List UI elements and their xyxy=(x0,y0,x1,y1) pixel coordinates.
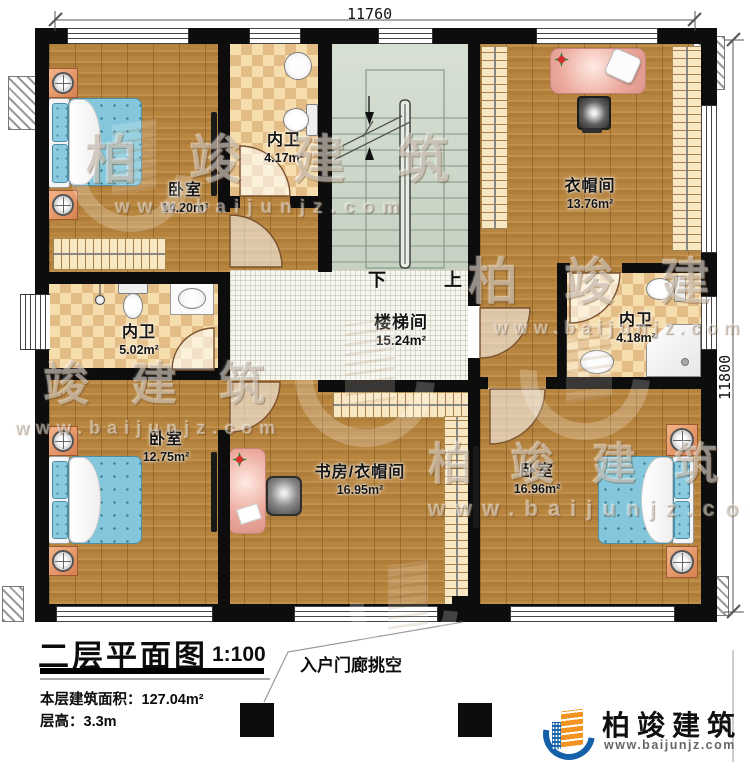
dimension-top-label: 11760 xyxy=(347,5,392,23)
monitor-stand xyxy=(582,128,602,133)
wall xyxy=(468,358,480,392)
window xyxy=(510,606,675,622)
floor-area-value: 127.04m² xyxy=(142,692,204,708)
stair-up-label: 上 xyxy=(444,266,462,292)
bed-pillow xyxy=(52,144,68,183)
stair-down-label: 下 xyxy=(368,266,386,292)
porch-column xyxy=(458,703,492,737)
floor-area-row: 本层建筑面积：127.04m² xyxy=(40,688,204,709)
toilet-icon xyxy=(283,108,309,132)
toilet-icon xyxy=(646,278,674,300)
room-label-bedroom-bl: 卧室 12.75m² xyxy=(106,430,226,466)
flower-icon xyxy=(232,452,247,467)
wardrobe xyxy=(52,238,166,270)
wardrobe xyxy=(444,416,470,606)
window xyxy=(20,294,50,350)
lamp-icon xyxy=(52,550,74,572)
brand-url: www.baijunjz.com xyxy=(604,738,736,752)
floor-height-label: 层高： xyxy=(40,714,84,730)
nightstand xyxy=(48,546,78,576)
wall xyxy=(546,377,701,389)
bed-mattress xyxy=(68,456,142,544)
wardrobe xyxy=(481,46,508,230)
wall xyxy=(468,44,480,306)
window xyxy=(378,28,433,44)
bed-blanket xyxy=(641,457,673,543)
nightstand xyxy=(48,190,78,220)
room-label-bedroom-br: 卧室 16.96m² xyxy=(477,462,597,498)
bed-pillow xyxy=(674,501,690,539)
lamp-icon xyxy=(670,550,694,574)
wardrobe xyxy=(672,46,702,252)
window xyxy=(701,105,717,253)
corner-column-hatch xyxy=(2,586,24,622)
brand-logo-icon xyxy=(543,698,595,760)
window xyxy=(701,296,717,350)
lamp-icon xyxy=(52,194,74,216)
wall xyxy=(480,377,488,389)
room-label-stairwell: 楼梯间 15.24m² xyxy=(340,312,462,350)
bed-mattress xyxy=(598,456,674,544)
wall xyxy=(557,263,567,387)
title-underline-thick xyxy=(40,668,264,674)
bed-blanket xyxy=(69,99,101,185)
bed-pillow xyxy=(52,461,68,499)
floor-height-row: 层高：3.3m xyxy=(40,710,117,731)
floor-height-value: 3.3m xyxy=(84,714,117,730)
bed-pillow xyxy=(674,461,690,499)
sink-icon xyxy=(284,52,312,80)
plan-scale: 1:100 xyxy=(212,643,266,667)
window xyxy=(536,28,658,44)
room-label-wic: 衣帽间 13.76m² xyxy=(530,177,650,213)
nightstand xyxy=(666,424,698,456)
wardrobe xyxy=(332,392,470,418)
floor-stairwell xyxy=(332,44,468,272)
window xyxy=(249,28,301,44)
wall xyxy=(35,368,230,380)
porch-annotation: 入户门廊挑空 xyxy=(300,651,402,676)
window xyxy=(67,28,189,44)
bed-pillow xyxy=(52,103,68,142)
nightstand xyxy=(48,68,78,98)
porch-column xyxy=(240,703,274,737)
wall xyxy=(318,380,468,392)
bed-blanket xyxy=(69,457,101,543)
room-label-bath-tl: 内卫 4.17m² xyxy=(224,131,344,167)
lamp-icon xyxy=(52,430,74,452)
wall xyxy=(452,596,468,606)
room-label-bath-left: 内卫 5.02m² xyxy=(79,323,199,359)
sink-icon xyxy=(580,350,614,374)
wall xyxy=(557,263,570,273)
toilet-icon xyxy=(674,276,686,302)
lamp-icon xyxy=(52,72,74,94)
window xyxy=(56,606,213,622)
wall xyxy=(622,263,701,273)
floor-area-label: 本层建筑面积： xyxy=(40,692,142,708)
room-label-bedroom-tl: 卧室 14.20m² xyxy=(125,181,245,217)
room-label-bath-right: 内卫 4.18m² xyxy=(576,311,696,347)
bed-pillow xyxy=(52,501,68,539)
nightstand xyxy=(48,426,78,456)
bed-mattress xyxy=(68,98,142,186)
window xyxy=(294,606,438,622)
wall xyxy=(290,196,318,208)
flower-icon xyxy=(554,52,569,67)
room-label-study: 书房/衣帽间 16.95m² xyxy=(290,463,430,499)
toilet-icon xyxy=(123,293,143,319)
lamp-icon xyxy=(670,428,694,452)
sink-icon xyxy=(178,288,206,309)
dimension-right-label: 11800 xyxy=(716,355,734,400)
nightstand xyxy=(666,546,698,578)
wall xyxy=(218,272,230,380)
title-underline-thin xyxy=(40,678,270,680)
monitor-icon xyxy=(577,96,611,130)
wall xyxy=(49,272,230,284)
